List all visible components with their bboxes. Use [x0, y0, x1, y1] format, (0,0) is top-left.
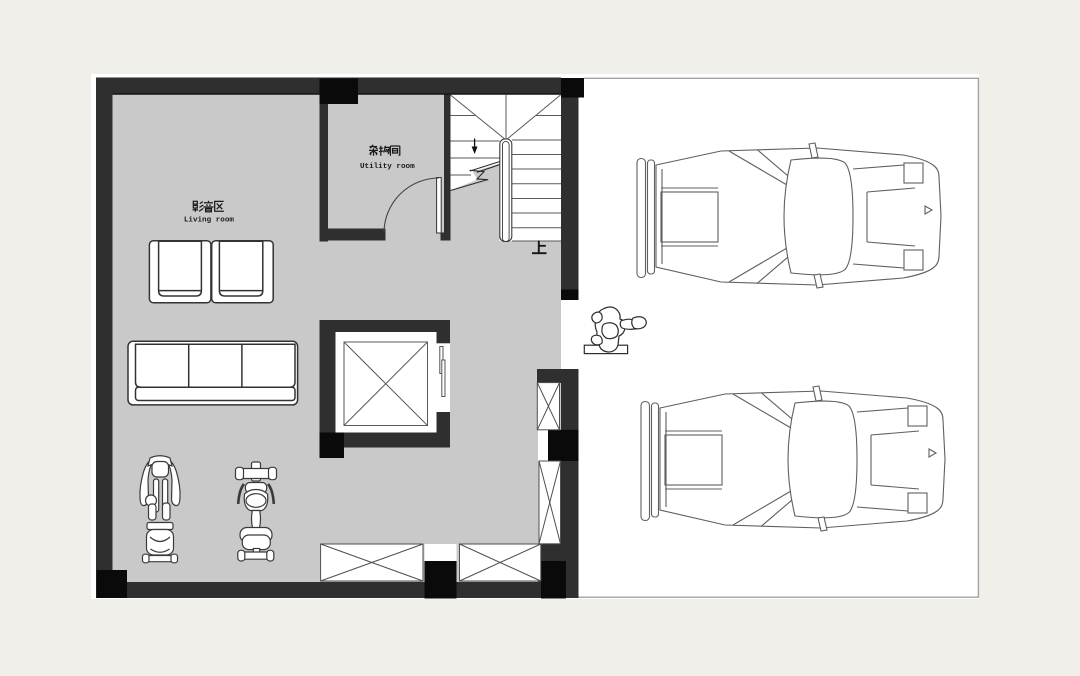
svg-text:Living room: Living room — [184, 217, 235, 225]
svg-text:Utility room: Utility room — [360, 163, 415, 171]
